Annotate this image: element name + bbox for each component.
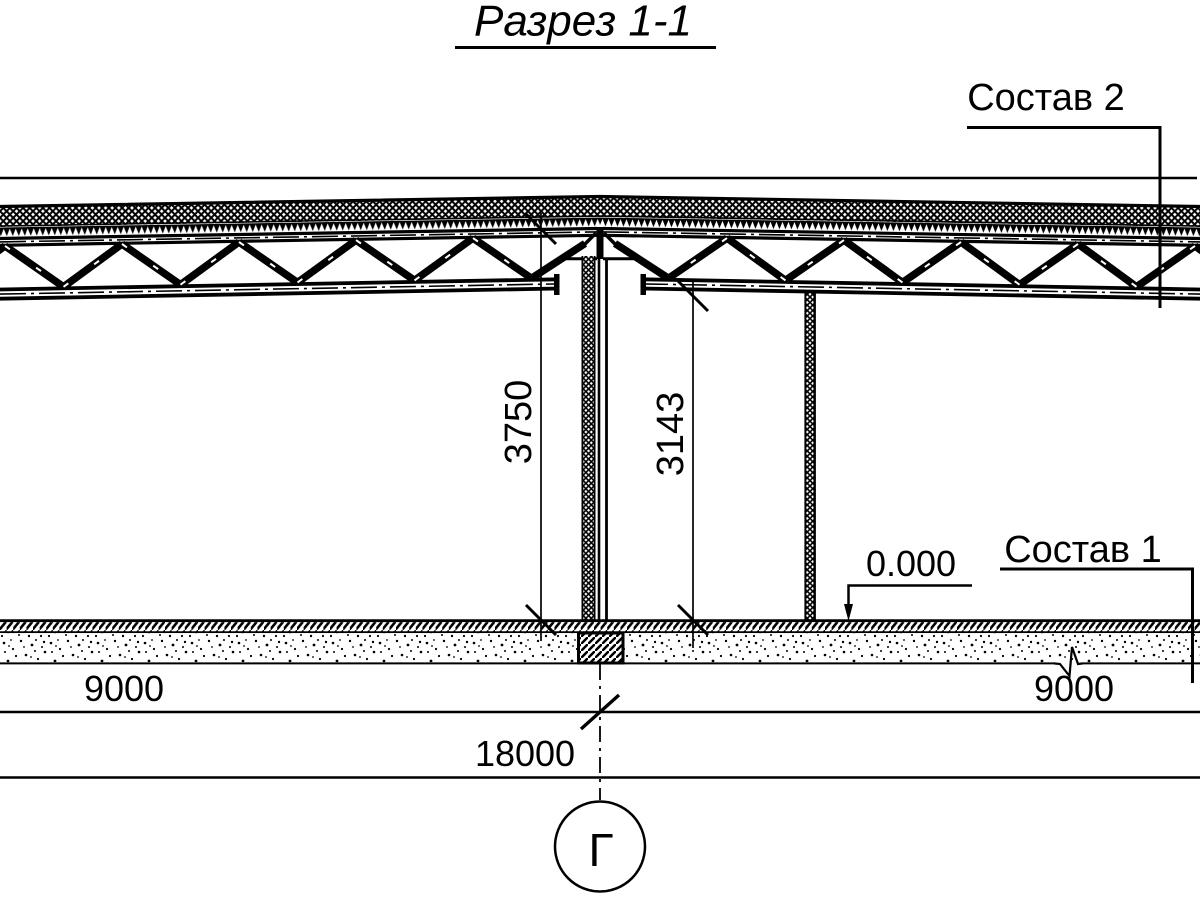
- svg-text:18000: 18000: [475, 733, 575, 774]
- svg-text:3143: 3143: [650, 392, 692, 477]
- svg-text:3750: 3750: [498, 380, 540, 465]
- svg-text:Состав 1: Состав 1: [1004, 529, 1162, 571]
- svg-text:Состав 2: Состав 2: [967, 77, 1125, 119]
- svg-text:Разрез 1-1: Разрез 1-1: [474, 0, 692, 46]
- svg-text:Г: Г: [589, 824, 614, 876]
- svg-text:0.000: 0.000: [866, 543, 956, 584]
- svg-text:9000: 9000: [1034, 668, 1114, 709]
- svg-text:9000: 9000: [84, 668, 164, 709]
